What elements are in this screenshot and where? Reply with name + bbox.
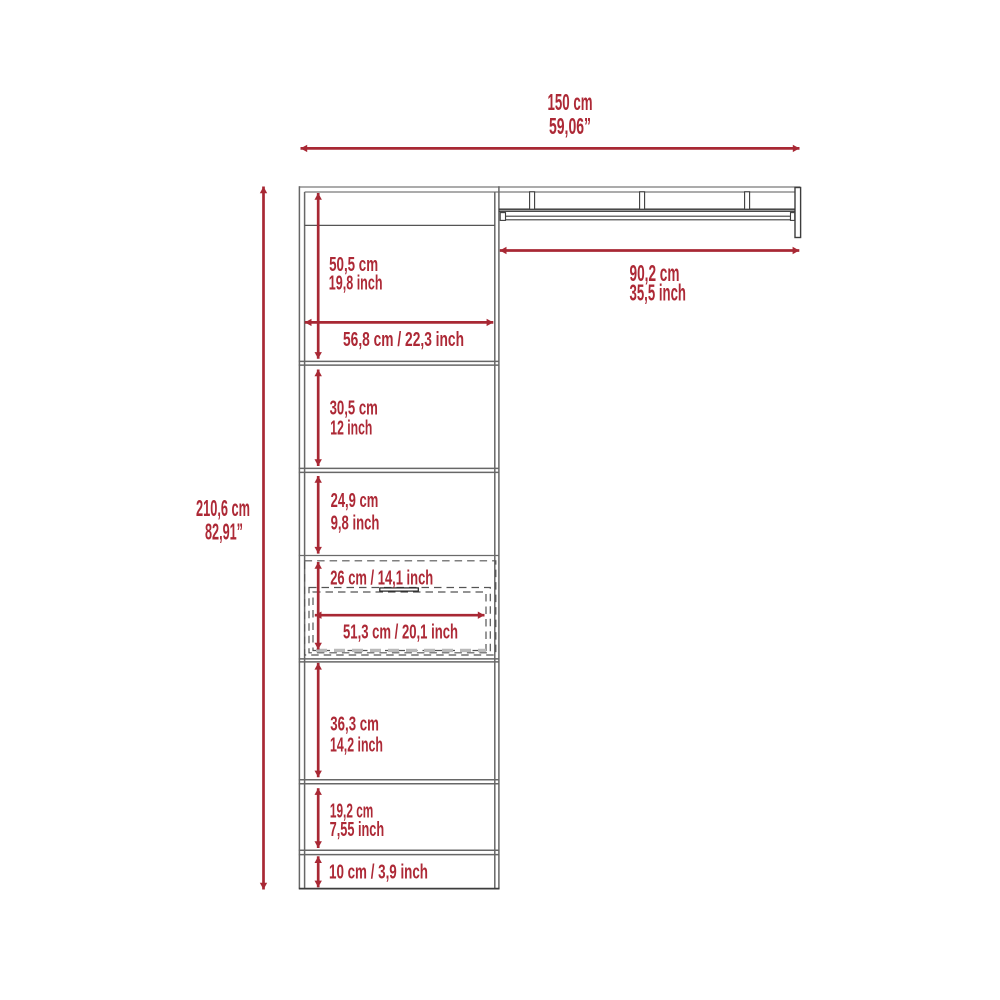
svg-text:210,6 cm: 210,6 cm [196,495,250,521]
svg-text:35,5 inch: 35,5 inch [630,280,687,306]
svg-text:24,9 cm: 24,9 cm [331,489,379,512]
svg-text:26 cm / 14,1 inch: 26 cm / 14,1 inch [330,567,433,590]
svg-text:12 inch: 12 inch [330,417,372,440]
svg-text:36,3 cm: 36,3 cm [330,712,379,735]
svg-text:56,8 cm / 22,3 inch: 56,8 cm / 22,3 inch [343,328,464,351]
svg-text:14,2 inch: 14,2 inch [330,734,383,757]
svg-text:59,06”: 59,06” [549,113,591,139]
svg-text:51,3 cm / 20,1 inch: 51,3 cm / 20,1 inch [343,620,458,643]
svg-text:82,91”: 82,91” [205,519,243,545]
svg-text:9,8 inch: 9,8 inch [331,511,380,534]
svg-text:150 cm: 150 cm [548,89,593,115]
svg-text:19,8 inch: 19,8 inch [329,271,383,294]
svg-text:10 cm / 3,9 inch: 10 cm / 3,9 inch [329,860,428,883]
svg-text:7,55 inch: 7,55 inch [330,818,385,841]
